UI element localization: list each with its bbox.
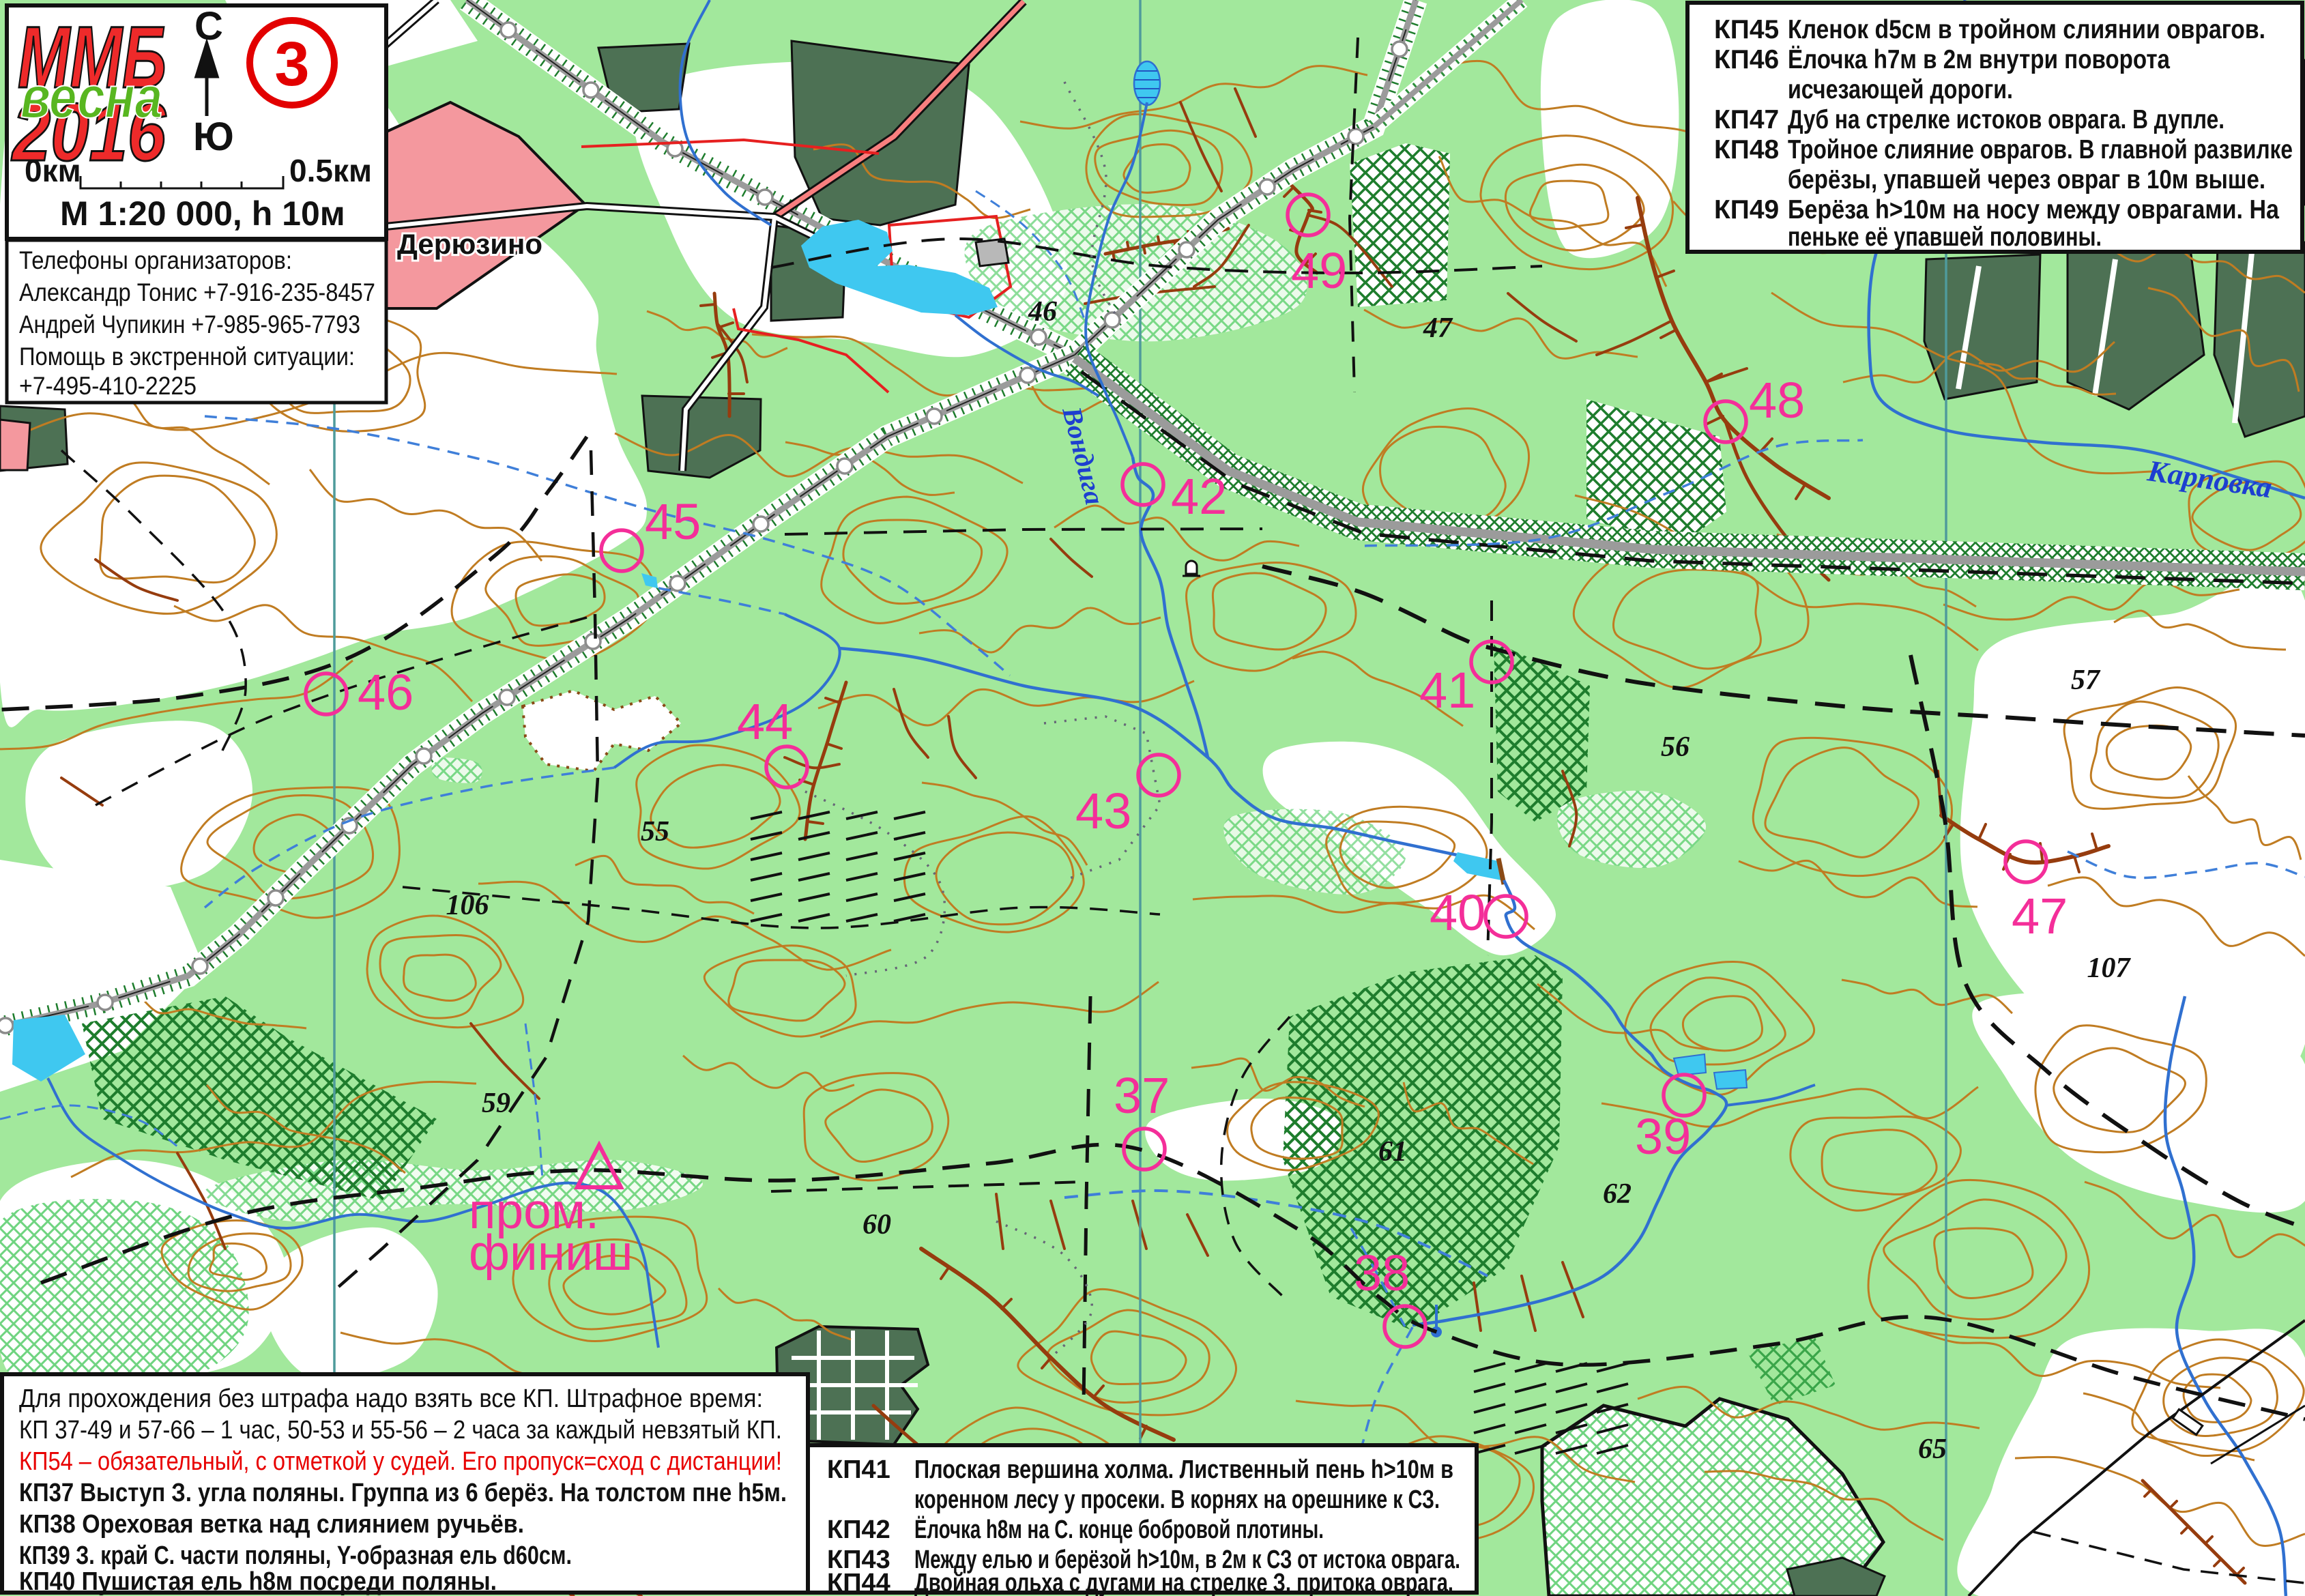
svg-text:106: 106 bbox=[446, 890, 489, 921]
svg-text:42: 42 bbox=[1171, 468, 1227, 525]
svg-text:59: 59 bbox=[482, 1088, 510, 1119]
svg-text:Ёлочка h8м на С. конце боброво: Ёлочка h8м на С. конце бобровой плотины. bbox=[914, 1515, 1324, 1544]
svg-text:48: 48 bbox=[1749, 372, 1805, 429]
svg-text:107: 107 bbox=[2087, 953, 2132, 984]
svg-text:Дерюзино: Дерюзино bbox=[397, 228, 542, 260]
svg-text:+7-495-410-2225: +7-495-410-2225 bbox=[19, 372, 197, 400]
svg-text:61: 61 bbox=[1378, 1136, 1407, 1167]
svg-text:С: С bbox=[194, 4, 223, 48]
svg-text:КП42: КП42 bbox=[827, 1515, 890, 1544]
svg-text:43: 43 bbox=[1075, 783, 1131, 839]
svg-text:КП39 З. край С. части поляны,: КП39 З. край С. части поляны, Y-образная… bbox=[19, 1541, 572, 1570]
svg-text:финиш: финиш bbox=[469, 1225, 633, 1281]
svg-text:весна: весна bbox=[20, 65, 162, 130]
svg-text:Для прохождения без штрафа над: Для прохождения без штрафа надо взять вс… bbox=[19, 1384, 763, 1413]
svg-text:56: 56 bbox=[1661, 731, 1690, 763]
svg-text:47: 47 bbox=[1423, 313, 1453, 344]
svg-text:КП41: КП41 bbox=[827, 1455, 890, 1484]
svg-text:65: 65 bbox=[1918, 1434, 1947, 1465]
svg-text:КП38 Ореховая ветка над слиян: КП38 Ореховая ветка над слиянием ручьёв. bbox=[19, 1510, 524, 1539]
svg-text:КП46: КП46 bbox=[1714, 45, 1779, 74]
svg-text:57: 57 bbox=[2071, 665, 2101, 696]
svg-text:КП47: КП47 bbox=[1714, 105, 1779, 134]
svg-text:Андрей Чупикин +7-985-965-7793: Андрей Чупикин +7-985-965-7793 bbox=[19, 310, 360, 338]
svg-text:пеньке её упавшей половины.: пеньке её упавшей половины. bbox=[1788, 222, 2102, 252]
svg-text:47: 47 bbox=[2012, 888, 2068, 944]
svg-text:КП48: КП48 bbox=[1714, 135, 1779, 164]
svg-text:М 1:20 000, h 10м: М 1:20 000, h 10м bbox=[60, 194, 345, 233]
svg-text:Берёза h>10м на носу между овр: Берёза h>10м на носу между оврагами. На bbox=[1788, 195, 2279, 224]
svg-text:3: 3 bbox=[274, 29, 309, 99]
svg-text:КП44: КП44 bbox=[827, 1569, 890, 1596]
svg-text:55: 55 bbox=[641, 816, 669, 847]
svg-text:0.5км: 0.5км bbox=[289, 153, 372, 188]
svg-text:49: 49 bbox=[1291, 242, 1347, 299]
svg-text:Тройное слияние оврагов. В гла: Тройное слияние оврагов. В главной разви… bbox=[1788, 135, 2293, 164]
svg-text:берёзы, упавшей через овраг в: берёзы, упавшей через овраг в 10м выше. bbox=[1788, 165, 2265, 194]
svg-text:44: 44 bbox=[737, 693, 793, 750]
svg-text:40: 40 bbox=[1430, 884, 1485, 941]
svg-text:Ю: Ю bbox=[193, 115, 234, 159]
svg-text:60: 60 bbox=[862, 1209, 891, 1240]
svg-text:0км: 0км bbox=[25, 153, 81, 188]
svg-text:Дуб на стрелке истоков оврага.: Дуб на стрелке истоков оврага. В дупле. bbox=[1788, 105, 2224, 134]
svg-text:45: 45 bbox=[645, 493, 701, 550]
svg-text:КП37 Выступ З. угла поляны. Г: КП37 Выступ З. угла поляны. Группа из 6 … bbox=[19, 1479, 787, 1507]
svg-text:39: 39 bbox=[1635, 1108, 1691, 1165]
svg-text:62: 62 bbox=[1603, 1178, 1632, 1210]
svg-text:КП54 – обязательный, с отметко: КП54 – обязательный, с отметкой у судей.… bbox=[19, 1447, 782, 1476]
svg-text:Двойная ольха с дугами на стре: Двойная ольха с дугами на стрелке З. при… bbox=[914, 1569, 1453, 1596]
svg-text:КП 37-49 и 57-66 – 1 час, 50-5: КП 37-49 и 57-66 – 1 час, 50-53 и 55-56 … bbox=[19, 1416, 782, 1445]
svg-text:38: 38 bbox=[1354, 1245, 1410, 1301]
svg-text:Плоская вершина холма. Листвен: Плоская вершина холма. Лиственный пень h… bbox=[914, 1455, 1453, 1484]
svg-text:коренном лесу у просеки. В кор: коренном лесу у просеки. В корнях на оре… bbox=[914, 1485, 1440, 1514]
svg-text:Александр Тонис +7-916-235-845: Александр Тонис +7-916-235-8457 bbox=[19, 278, 375, 306]
svg-text:Помощь в экстренной ситуации:: Помощь в экстренной ситуации: bbox=[19, 343, 355, 371]
svg-text:КП40 Пушистая ель h8м посреди: КП40 Пушистая ель h8м посреди поляны. bbox=[19, 1567, 497, 1596]
svg-text:Кленок d5см в тройном слиянии: Кленок d5см в тройном слиянии оврагов. bbox=[1788, 15, 2265, 44]
svg-text:37: 37 bbox=[1114, 1067, 1170, 1124]
svg-text:46: 46 bbox=[1028, 296, 1057, 328]
svg-text:КП49: КП49 bbox=[1714, 195, 1779, 224]
svg-text:КП45: КП45 bbox=[1714, 15, 1779, 44]
svg-text:исчезающей дороги.: исчезающей дороги. bbox=[1788, 75, 2013, 104]
svg-text:41: 41 bbox=[1419, 662, 1475, 719]
svg-text:Телефоны организаторов:: Телефоны организаторов: bbox=[19, 246, 292, 274]
svg-text:46: 46 bbox=[358, 664, 414, 721]
svg-text:Ёлочка h7м в 2м внутри поворот: Ёлочка h7м в 2м внутри поворота bbox=[1788, 45, 2170, 74]
